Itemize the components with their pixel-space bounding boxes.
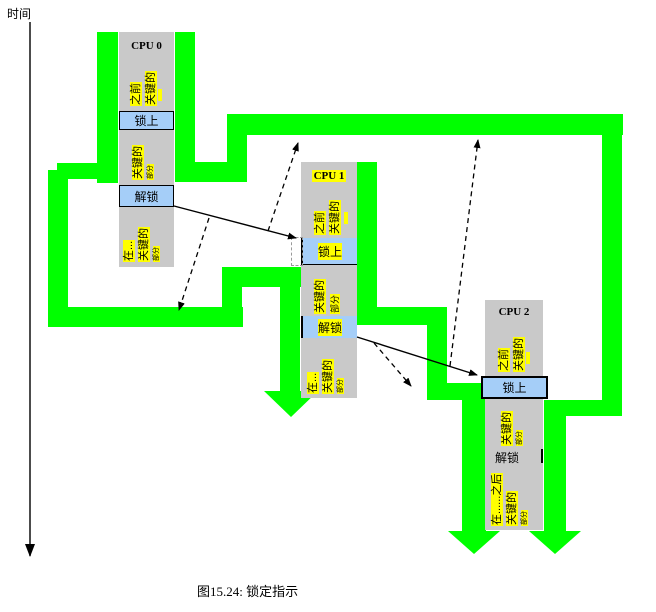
dashed-arrow-up-band2 [450,140,478,366]
dashed-arrow-up-band1 [268,143,298,231]
arrows-layer [0,0,656,612]
dashed-arrow-down-right [374,343,411,386]
dashed-arrow-down-left [179,218,209,310]
unlock1-to-lock2-arrow [357,337,477,375]
lock-indication-diagram: 时间 CPU 0 之前 关键的 锁上 关键的 部分 解锁 在... 关键的 部分… [0,0,656,612]
unlock0-to-lock1-arrow [174,206,296,238]
